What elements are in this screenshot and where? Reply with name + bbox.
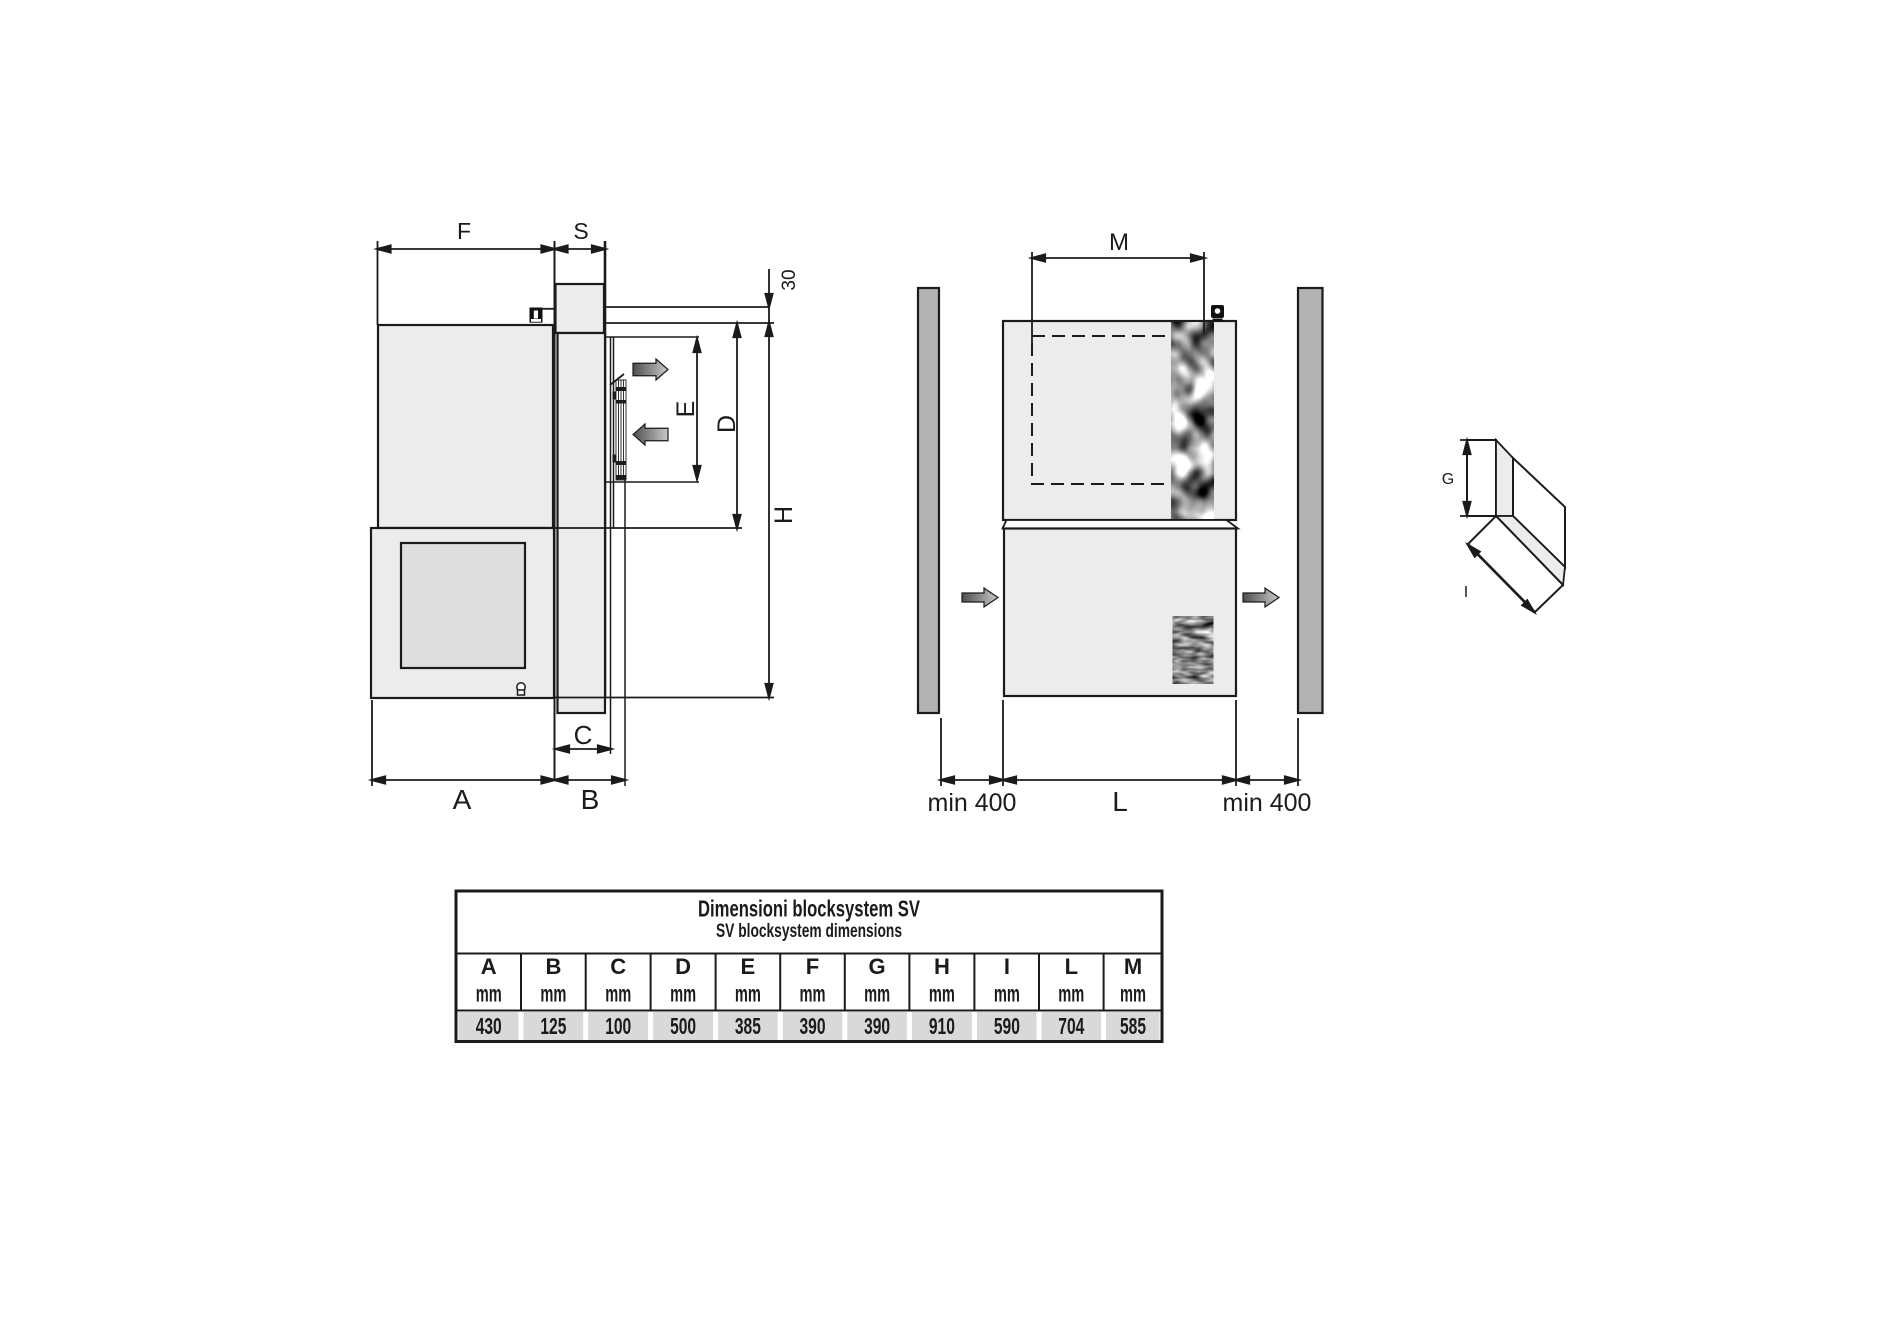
svg-text:M: M — [1109, 229, 1129, 256]
svg-text:L: L — [1065, 954, 1078, 979]
svg-text:704: 704 — [1058, 1013, 1084, 1039]
svg-text:F: F — [457, 218, 471, 244]
svg-text:mm: mm — [735, 981, 761, 1007]
svg-text:590: 590 — [994, 1013, 1020, 1039]
svg-text:390: 390 — [800, 1013, 826, 1039]
svg-text:125: 125 — [540, 1013, 566, 1039]
svg-text:B: B — [545, 954, 561, 979]
svg-text:mm: mm — [1058, 981, 1084, 1007]
svg-text:500: 500 — [670, 1013, 696, 1039]
svg-text:I: I — [1004, 954, 1010, 979]
svg-text:mm: mm — [994, 981, 1020, 1007]
svg-text:D: D — [675, 954, 691, 979]
svg-text:Dimensioni blocksystem SV: Dimensioni blocksystem SV — [698, 896, 920, 922]
svg-text:385: 385 — [735, 1013, 761, 1039]
svg-text:S: S — [573, 218, 588, 244]
svg-text:E: E — [672, 401, 700, 418]
svg-text:SV blocksystem dimensions: SV blocksystem dimensions — [716, 921, 902, 942]
svg-text:910: 910 — [929, 1013, 955, 1039]
svg-text:F: F — [806, 954, 819, 979]
svg-text:mm: mm — [800, 981, 826, 1007]
svg-text:I: I — [1464, 584, 1468, 601]
svg-text:390: 390 — [864, 1013, 890, 1039]
svg-text:mm: mm — [864, 981, 890, 1007]
svg-text:min 400: min 400 — [1223, 789, 1312, 817]
svg-text:mm: mm — [1120, 981, 1146, 1007]
svg-text:430: 430 — [476, 1013, 502, 1039]
svg-text:L: L — [1112, 786, 1128, 817]
svg-text:100: 100 — [605, 1013, 631, 1039]
svg-text:E: E — [741, 954, 756, 979]
svg-text:C: C — [574, 720, 593, 750]
svg-text:min 400: min 400 — [928, 789, 1017, 817]
svg-text:mm: mm — [540, 981, 566, 1007]
svg-text:A: A — [481, 954, 497, 979]
svg-text:A: A — [453, 784, 472, 815]
svg-text:D: D — [713, 415, 741, 433]
svg-text:M: M — [1124, 954, 1142, 979]
svg-text:H: H — [934, 954, 950, 979]
svg-text:585: 585 — [1120, 1013, 1146, 1039]
svg-text:G: G — [1442, 471, 1454, 488]
svg-text:mm: mm — [670, 981, 696, 1007]
svg-text:B: B — [581, 784, 600, 815]
svg-text:mm: mm — [929, 981, 955, 1007]
svg-text:H: H — [770, 506, 798, 524]
svg-text:G: G — [869, 954, 886, 979]
svg-text:30: 30 — [779, 269, 800, 290]
svg-text:C: C — [610, 954, 626, 979]
svg-text:mm: mm — [476, 981, 502, 1007]
svg-text:mm: mm — [605, 981, 631, 1007]
